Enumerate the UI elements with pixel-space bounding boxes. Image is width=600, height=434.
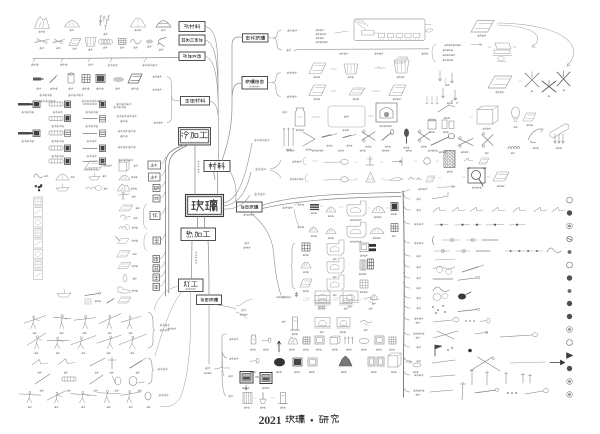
svg-text:2021: 2021	[259, 413, 282, 427]
